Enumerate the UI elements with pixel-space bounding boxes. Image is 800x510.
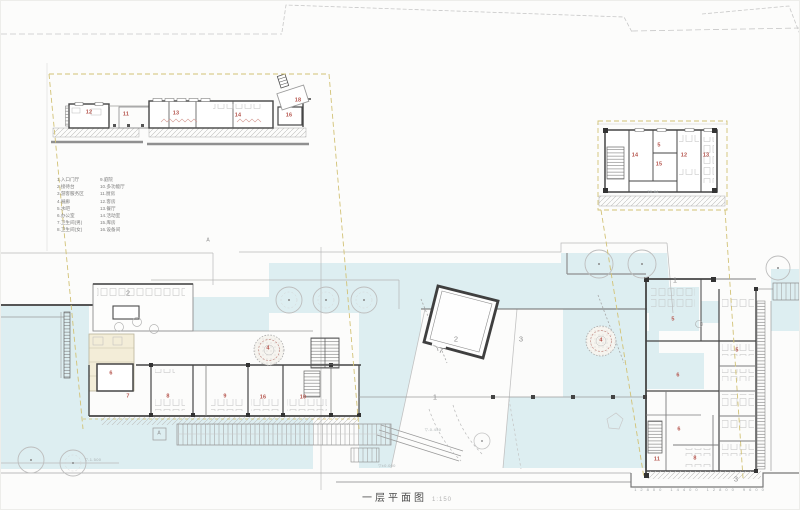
room-number: 11 [654,457,660,463]
room-number: 8 [166,394,169,400]
dimension-row: 12800 14400 12800 9600 [634,488,768,492]
area-number: 4 [599,338,602,344]
room-number: 7 [126,394,129,400]
legend-item: 9.庭院 [100,176,113,183]
legend-item: 3.游客服务区 [57,190,100,197]
room-number: 5 [657,143,660,149]
area-number: 3 [519,335,523,343]
elevation-note: ▽±0.000 [378,464,395,468]
room-number: 13 [173,111,180,117]
room-number: 8 [693,456,696,462]
legend-item: 11.厨房 [100,190,115,197]
room-number: 16 [260,395,267,401]
drawing-title: 一层平面图 [362,493,427,504]
room-number: 14 [235,113,242,119]
room-number: 14 [632,153,639,159]
legend-item: 5.水吧 [57,205,100,212]
room-number: 11 [123,112,129,118]
floor-plan-drawing [1,1,800,510]
room-number: 10 [300,395,307,401]
legend-item: 8.卫生间(女) [57,226,100,233]
room-number: 18 [295,98,302,104]
grid-marker: A [206,239,209,244]
room-number: 6 [109,371,112,377]
legend-item: 4.展廊 [57,198,100,205]
room-number: 15 [656,162,663,168]
room-number: 12 [681,153,688,159]
floor-plan-canvas: 1.入口门厅9.庭院 2.接待台10.多功能厅 3.游客服务区11.厨房 4.展… [0,0,800,510]
room-number: 5 [671,317,674,323]
area-number: 4 [266,346,269,352]
legend-item: 6.办公室 [57,212,100,219]
legend: 1.入口门厅9.庭院 2.接待台10.多功能厅 3.游客服务区11.厨房 4.展… [57,176,125,234]
room-number: 5 [735,348,738,354]
legend-item: 7.卫生间(男) [57,219,100,226]
legend-item: 15.库房 [100,219,116,226]
area-number: 1 [673,276,677,284]
area-number: 2 [454,335,458,343]
room-number: 16 [286,113,293,119]
room-number: 13 [703,153,710,159]
area-number: 3 [734,475,738,483]
legend-item: 16.设备间 [100,226,120,233]
drawing-title-block: 一层平面图1:150 [337,488,477,506]
legend-item: 12.客房 [100,198,116,205]
room-number: 6 [676,373,679,379]
area-number: 1 [433,393,437,401]
legend-item: 13.餐厅 [100,205,116,212]
legend-item: 10.多功能厅 [100,183,125,190]
elevation-note: ▽-1.500 [85,458,102,462]
elevation-note: ▽-0.450 [425,428,442,432]
room-number: 6 [677,427,680,433]
legend-item: 1.入口门厅 [57,176,100,183]
area-number: 2 [126,289,130,297]
dimension-note: 70.84 [647,190,659,194]
room-number: 9 [223,394,226,400]
legend-item: 2.接待台 [57,183,100,190]
section-marker: A [157,432,160,437]
room-number: 12 [86,110,93,116]
legend-item: 14.活动室 [100,212,120,219]
drawing-scale: 1:150 [432,497,452,503]
